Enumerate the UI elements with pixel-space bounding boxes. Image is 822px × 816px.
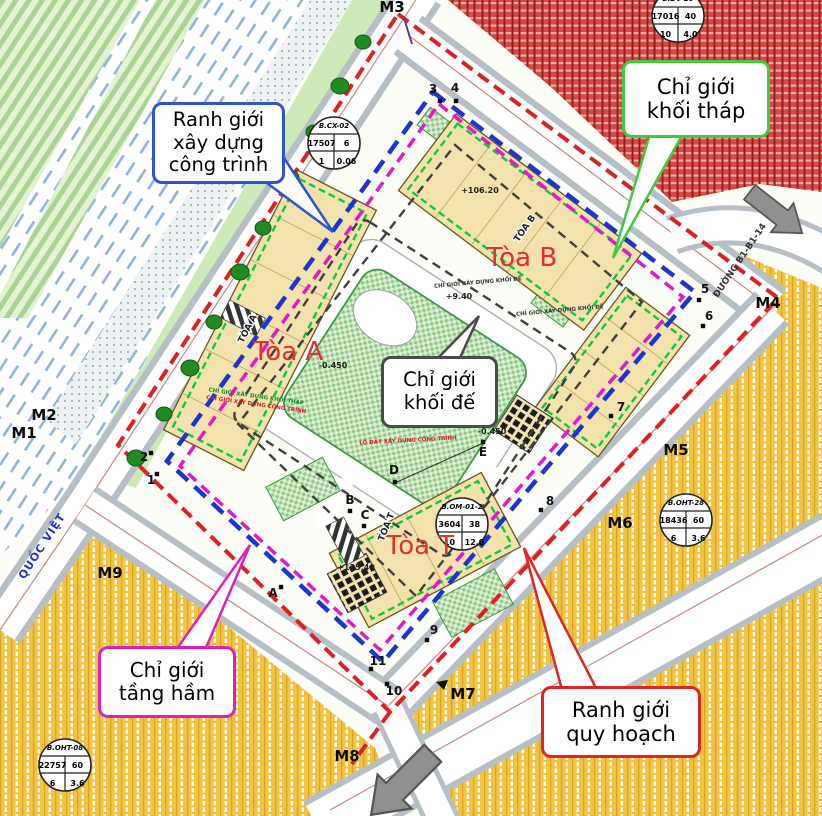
svg-text:6: 6 [50, 779, 56, 788]
point-3: 3 [429, 82, 437, 96]
point-5: 5 [701, 282, 709, 296]
elevation-toa-t: +115.40 [337, 563, 375, 572]
elevation-podium: +9.40 [446, 292, 473, 301]
point-b: B [345, 493, 354, 507]
callout-line: Ranh giới [155, 109, 282, 132]
label-toa-b: Tòa B [486, 243, 557, 273]
callout-basement-boundary: Chỉ giới tầng hầm [98, 646, 236, 718]
svg-text:B.OHT-28: B.OHT-28 [668, 499, 704, 507]
svg-text:3604: 3604 [438, 520, 461, 529]
svg-text:B.DV-20: B.DV-20 [662, 0, 693, 3]
point-4: 4 [451, 81, 459, 95]
svg-text:B.CX-02: B.CX-02 [319, 122, 349, 130]
callout-line: Ranh giới [544, 698, 698, 722]
callout-line: xây dựng [155, 132, 282, 155]
svg-text:B.OM-01-2: B.OM-01-2 [441, 503, 482, 511]
callout-line: công trình [155, 154, 282, 177]
point-11: 11 [370, 654, 387, 668]
point-7: 7 [617, 400, 625, 414]
svg-text:3.6: 3.6 [70, 779, 85, 788]
svg-text:3.6: 3.6 [691, 534, 706, 543]
marker-m3: M3 [379, 0, 404, 16]
point-8: 8 [546, 494, 554, 508]
svg-text:B.OHT-08: B.OHT-08 [47, 744, 83, 752]
point-d: D [389, 463, 399, 477]
point-2: 2 [140, 450, 148, 464]
planning-map: B.CX-02 17507 6 1 0.06 B.DV-20 17016 40 … [0, 0, 822, 816]
parcel-label-oht08: B.OHT-08 22757 60 6 3.6 [39, 739, 91, 791]
point-10: 10 [386, 684, 403, 698]
svg-text:17507: 17507 [308, 139, 336, 148]
svg-text:12.0: 12.0 [465, 538, 485, 547]
marker-m8: M8 [334, 747, 359, 765]
point-9: 9 [430, 623, 438, 637]
marker-m6: M6 [607, 514, 632, 532]
marker-m7: M7 [450, 685, 475, 703]
svg-text:4.0: 4.0 [683, 30, 698, 39]
svg-text:40: 40 [685, 12, 697, 21]
callout-line: Chỉ giới [384, 369, 495, 392]
callout-podium-boundary: Chỉ giới khối đế [381, 356, 498, 428]
svg-text:1: 1 [319, 157, 325, 166]
label-toa-t: Tòa T [385, 531, 455, 561]
svg-text:0.06: 0.06 [337, 157, 357, 166]
marker-m4: M4 [755, 294, 780, 312]
parcel-label-cx02: B.CX-02 17507 6 1 0.06 [308, 117, 360, 169]
label-toa-a: Tòa A [252, 337, 324, 367]
marker-m9: M9 [97, 564, 122, 582]
marker-m5: M5 [663, 441, 688, 459]
elevation-court-east: -0.450 [478, 427, 507, 436]
svg-text:60: 60 [72, 761, 84, 770]
callout-line: khối tháp [625, 99, 767, 123]
svg-text:6: 6 [671, 534, 677, 543]
callout-planning-boundary: Ranh giới quy hoạch [541, 686, 701, 758]
callout-line: khối đế [384, 392, 495, 415]
svg-text:22757: 22757 [39, 761, 67, 770]
callout-construction-boundary: Ranh giới xây dựng công trình [152, 102, 285, 184]
point-1: 1 [147, 473, 155, 487]
svg-text:38: 38 [469, 520, 481, 529]
elevation-toa-b: +106.20 [461, 186, 499, 195]
point-a: A [268, 586, 278, 600]
callout-line: quy hoạch [544, 722, 698, 746]
marker-m1: M1 [11, 424, 36, 442]
parcel-label-oht28: B.OHT-28 18436 60 6 3.6 [660, 494, 712, 546]
point-e: E [479, 445, 487, 459]
callout-line: tầng hầm [101, 682, 233, 705]
elevation-court-west: -0.450 [319, 361, 348, 370]
svg-text:60: 60 [693, 516, 705, 525]
callout-tower-boundary: Chỉ giới khối tháp [622, 60, 770, 138]
marker-m2: M2 [31, 406, 56, 424]
svg-text:6: 6 [344, 139, 350, 148]
callout-line: Chỉ giới [101, 659, 233, 682]
point-6: 6 [705, 309, 713, 323]
parcel-label-dv20: B.DV-20 17016 40 10 4.0 [652, 0, 704, 42]
svg-text:18436: 18436 [660, 516, 688, 525]
svg-text:10: 10 [660, 30, 672, 39]
point-c: C [361, 508, 370, 522]
callout-line: Chỉ giới [625, 75, 767, 99]
svg-text:17016: 17016 [652, 12, 680, 21]
